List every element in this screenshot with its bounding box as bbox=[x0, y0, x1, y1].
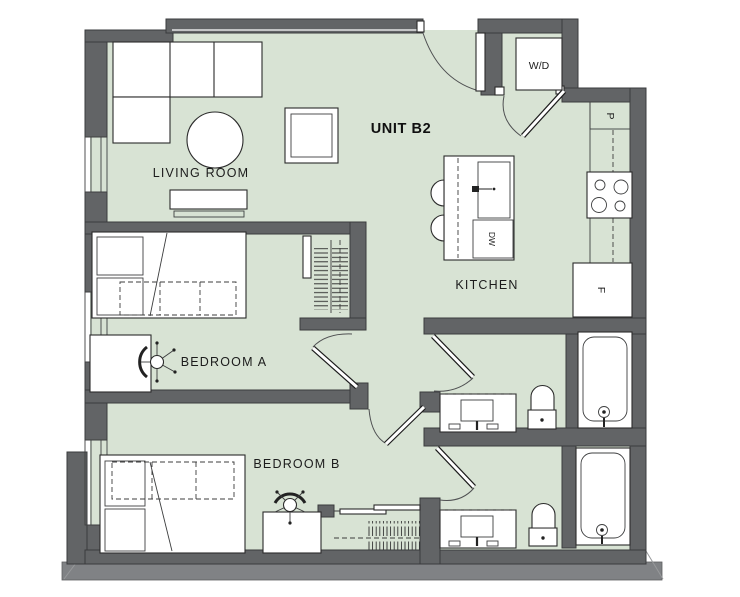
entry-door-leaf bbox=[476, 33, 485, 91]
bedroom-a-label: BEDROOM A bbox=[181, 355, 268, 369]
vanity-1 bbox=[440, 394, 516, 432]
wall-closetB-right bbox=[420, 498, 440, 564]
toilet-2 bbox=[529, 504, 557, 547]
fridge: F bbox=[573, 263, 632, 317]
kitchen-label: KITCHEN bbox=[455, 278, 518, 292]
pantry-label: P bbox=[604, 112, 616, 119]
sink-faucet-base bbox=[472, 186, 479, 192]
wall-tub2-partition bbox=[562, 446, 576, 548]
wall-hall-stub-left bbox=[350, 383, 368, 409]
kitchen-island: DW bbox=[431, 156, 514, 260]
bed-a bbox=[92, 232, 246, 318]
range bbox=[587, 172, 632, 218]
closet-a-slider-panel bbox=[303, 236, 311, 278]
bathtub-1 bbox=[578, 332, 632, 428]
unit-label: UNIT B2 bbox=[371, 121, 432, 137]
living-room-label: LIVING ROOM bbox=[153, 166, 250, 180]
wall-top-step bbox=[85, 30, 173, 42]
bedroom-b-label: BEDROOM B bbox=[253, 457, 340, 471]
wall-left-pier bbox=[67, 452, 87, 564]
closet-b-hangers-top bbox=[366, 521, 422, 536]
closet-a-interior bbox=[314, 240, 348, 313]
exterior-plinth bbox=[62, 562, 662, 580]
laundry-closet: W/D bbox=[516, 38, 562, 90]
wall-closetA-bottom bbox=[300, 318, 366, 330]
dishwasher-label: DW bbox=[487, 232, 497, 246]
wall-closetA-right bbox=[350, 222, 366, 330]
wd-jamb-cap-left bbox=[495, 87, 504, 95]
exterior-notch bbox=[578, 0, 740, 88]
vanity-2 bbox=[440, 510, 516, 548]
bathtub-2 bbox=[576, 448, 630, 545]
desk-a bbox=[90, 335, 151, 392]
round-table bbox=[187, 112, 243, 168]
wall-top-main bbox=[166, 19, 423, 33]
bed-b bbox=[100, 455, 245, 553]
entry-jamb-cap bbox=[417, 21, 424, 32]
armchair bbox=[285, 108, 338, 163]
floor-plan-drawing: LIVING ROOM UNIT B2 W/D P F bbox=[0, 0, 740, 592]
fridge-label: F bbox=[595, 287, 607, 293]
desk-b bbox=[263, 512, 321, 553]
wall-left-1 bbox=[85, 30, 107, 137]
washer-dryer-label: W/D bbox=[529, 60, 550, 72]
toilet-1 bbox=[528, 386, 556, 430]
floor-plan-page: LIVING ROOM UNIT B2 W/D P F bbox=[0, 0, 740, 592]
